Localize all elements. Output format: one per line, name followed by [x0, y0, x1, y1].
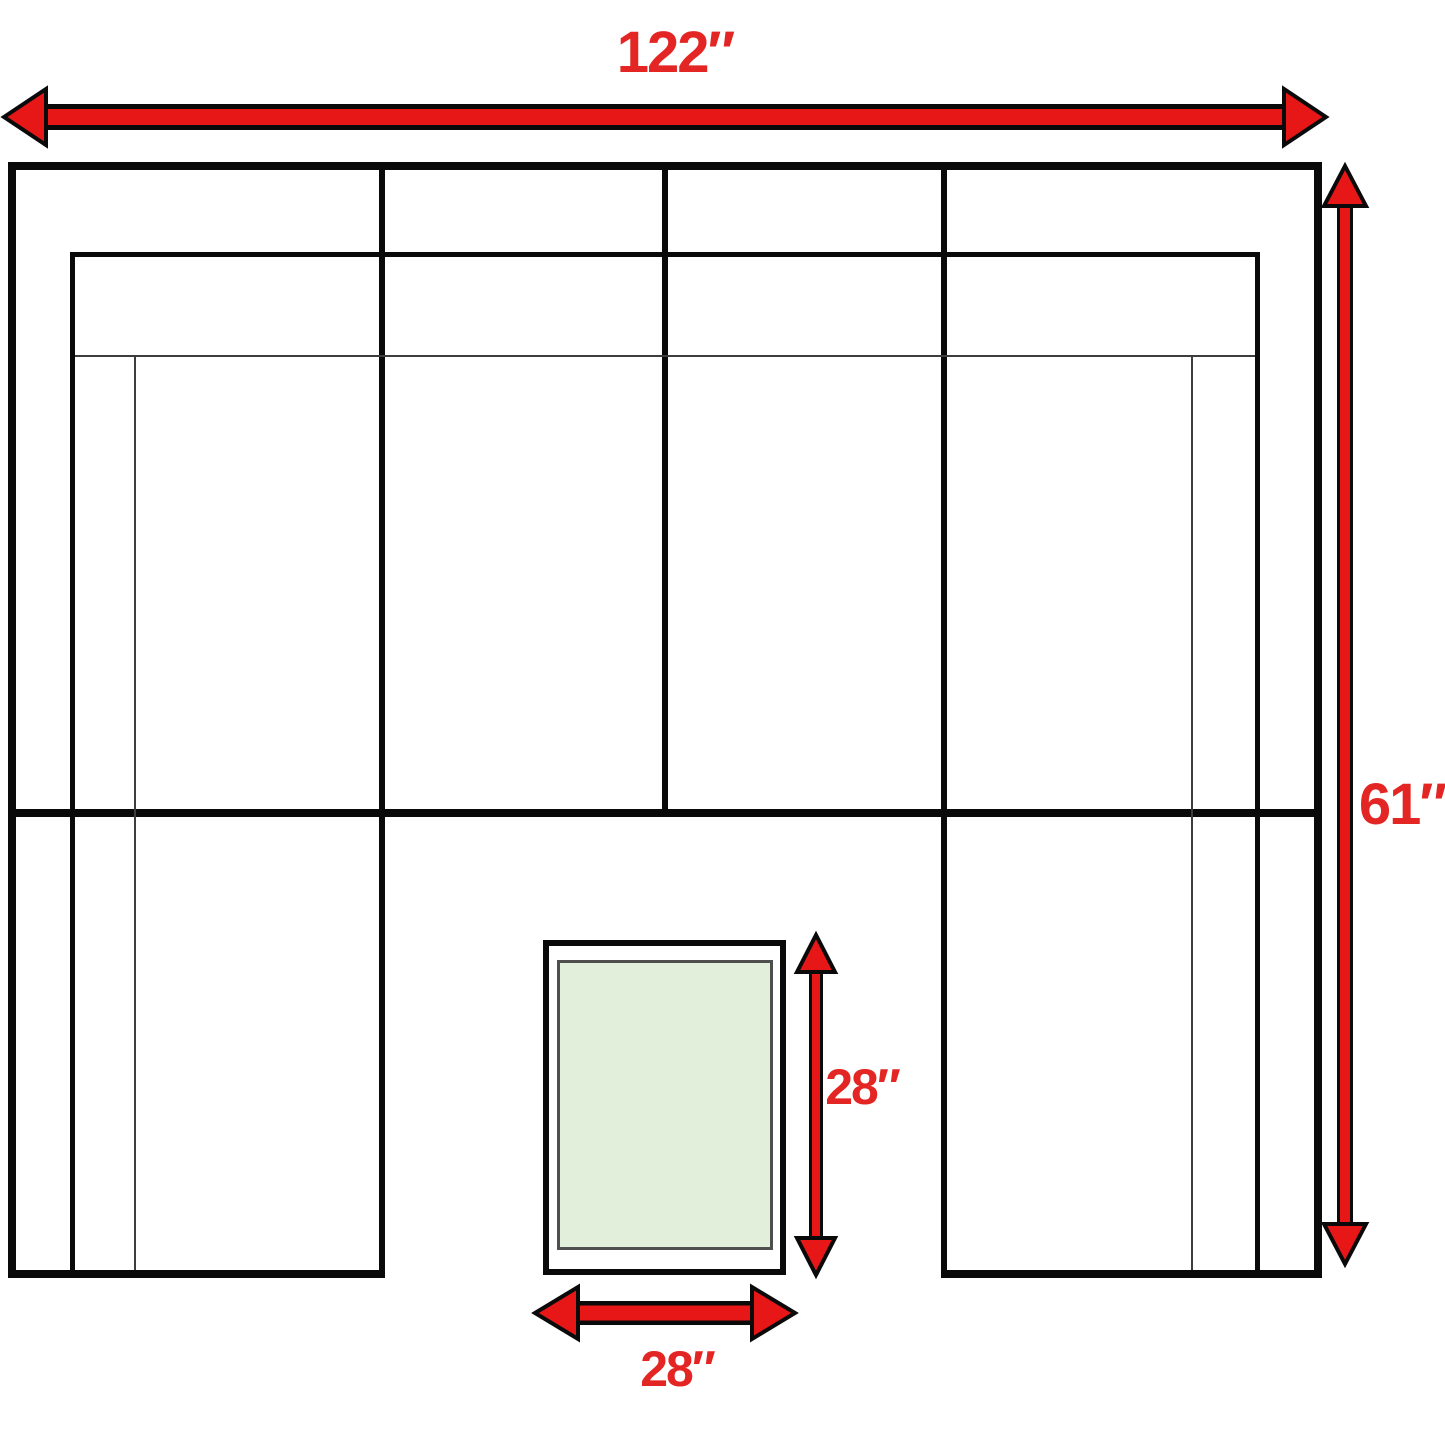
seat-divider-middle	[662, 162, 668, 817]
sofa-dimension-diagram: 122″ 61″ 28″ 28″	[0, 0, 1445, 1445]
ottoman-width-label: 28″	[627, 1344, 727, 1394]
overall-depth-label: 61″	[1352, 776, 1445, 834]
ottoman-width-dimension-arrow	[535, 1287, 795, 1339]
left-cushion-edge-line	[134, 356, 136, 1270]
sofa-right-arm-bottom-edge	[941, 1270, 1322, 1278]
depth-dimension-arrow	[1324, 166, 1366, 1264]
overall-width-label: 122″	[585, 24, 765, 82]
sofa-left-arm-bottom-edge	[8, 1270, 385, 1278]
ottoman-cushion	[557, 960, 773, 1250]
right-cushion-edge-line	[1191, 356, 1193, 1270]
sofa-outer-right-edge	[1314, 162, 1322, 1278]
ottoman-depth-label: 28″	[812, 1062, 912, 1112]
width-dimension-arrow	[4, 89, 1326, 145]
sofa-outer-left-edge	[8, 162, 16, 1278]
armrest-inner-left-line	[70, 252, 75, 1270]
backrest-inner-top-line	[70, 252, 1260, 257]
armrest-inner-right-line	[1255, 252, 1260, 1270]
back-cushion-front-line	[75, 355, 1255, 357]
seat-divider-right	[941, 162, 947, 1278]
seat-divider-left	[379, 162, 385, 1278]
seat-front-line	[8, 809, 1322, 817]
